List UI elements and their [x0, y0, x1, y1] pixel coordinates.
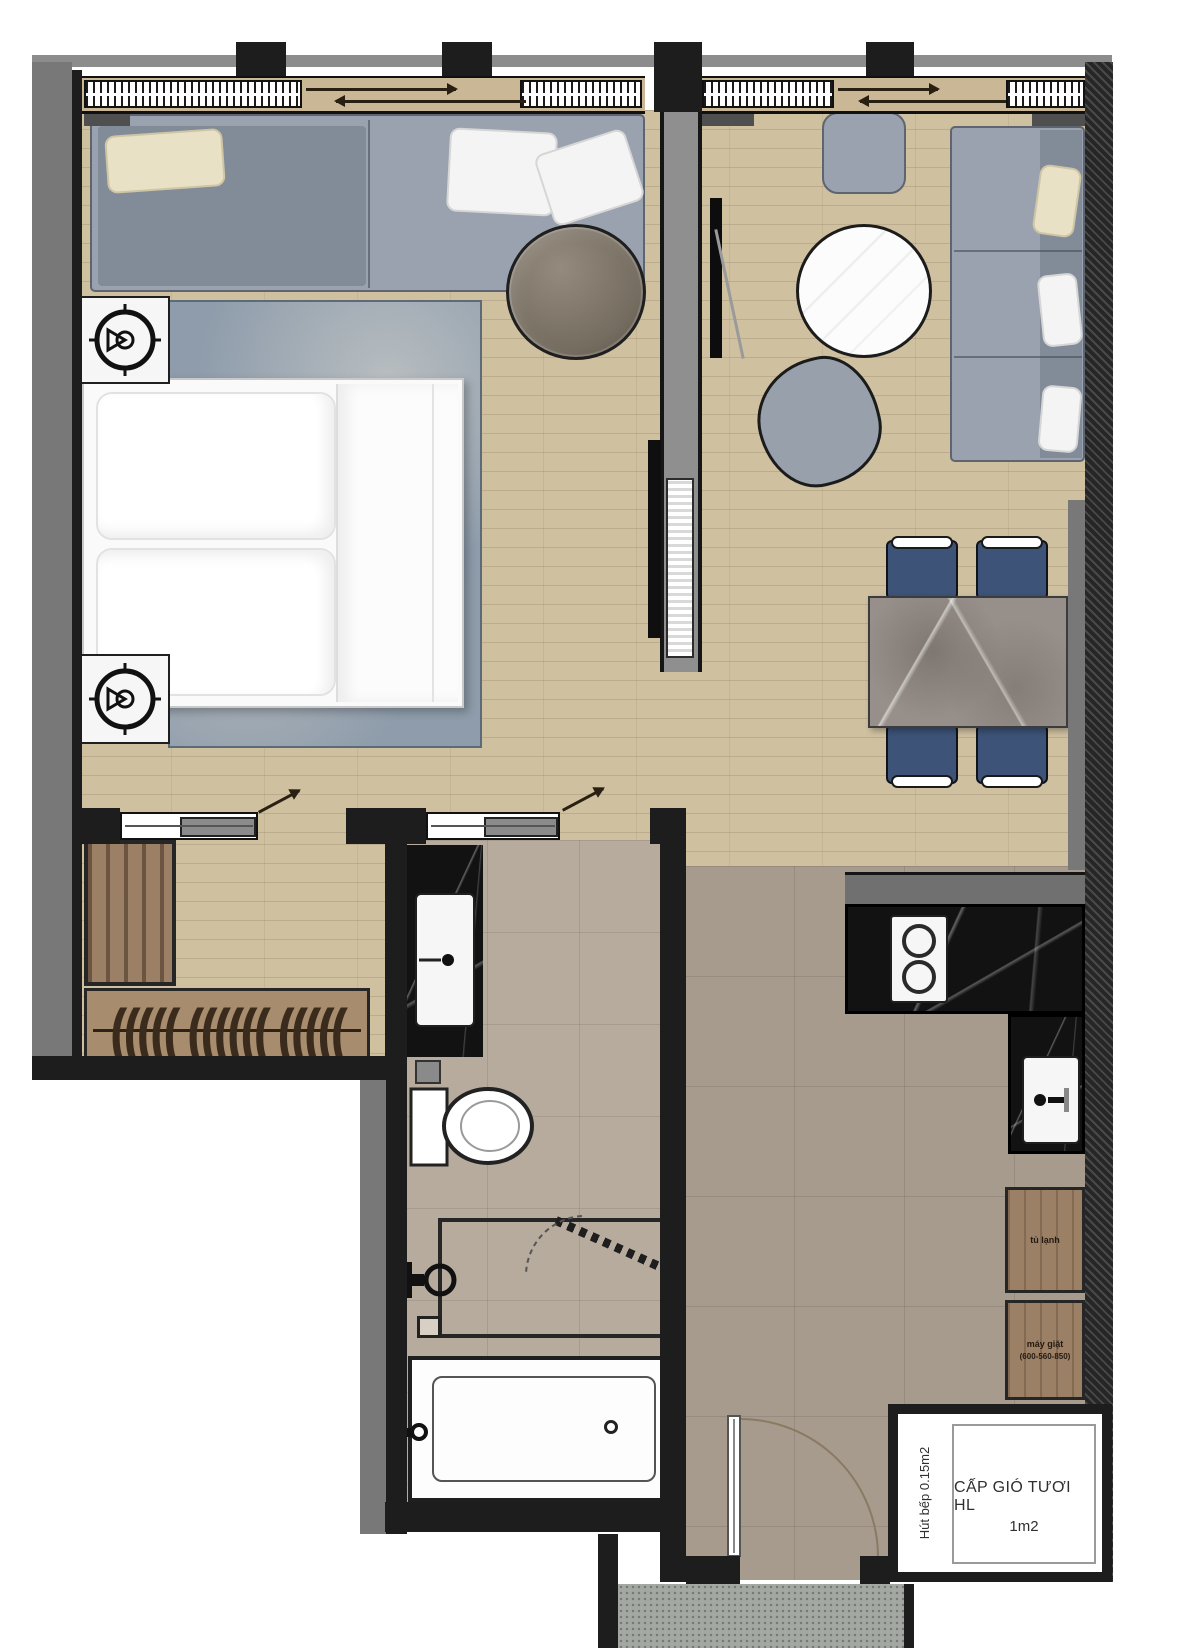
- chair-back-rail: [981, 775, 1043, 788]
- window-slide-arrow: [306, 88, 456, 91]
- window-slide-arrow: [838, 88, 938, 91]
- exterior-line-top: [32, 55, 1112, 67]
- kitchen-backsplash: [845, 872, 1085, 904]
- bedroom-partition-wall-left: [78, 808, 120, 844]
- window-hatch-bedroom-right: [520, 80, 642, 108]
- lamp-icon: [82, 298, 168, 382]
- dresser: [84, 840, 176, 986]
- bedroom-round-side-table: [506, 224, 646, 360]
- pocket-door-leaf-black: [648, 440, 661, 638]
- exterior-wall-left-inner: [72, 70, 82, 1074]
- burner-icons: [892, 917, 946, 1001]
- fridge-cabinet-label: tủ lạnh: [1030, 1235, 1060, 1246]
- bathtub: [408, 1356, 680, 1502]
- sliding-door-dressing[interactable]: [120, 812, 258, 840]
- chair-back-rail: [981, 536, 1043, 549]
- window-hatch-bedroom-left: [84, 80, 302, 108]
- bathroom-wall-right: [660, 808, 686, 1582]
- bathroom-wall-left: [385, 808, 407, 1534]
- dining-wall-face: [1068, 500, 1085, 870]
- sliding-door-bathroom[interactable]: [426, 812, 560, 840]
- window-slide-arrow: [860, 100, 1006, 103]
- bed-duvet: [336, 384, 458, 702]
- stove: [890, 915, 948, 1003]
- range-hood-label: Hút bếp 0.15m2: [917, 1447, 932, 1540]
- entry-wall-right-jamb: [860, 1556, 890, 1584]
- washer-cabinet-dims: (600-560-850): [1020, 1352, 1071, 1362]
- sofa-seat-line-1: [954, 250, 1082, 252]
- window-hatch-living-left: [702, 80, 834, 108]
- dining-chair-top-right: [976, 540, 1048, 600]
- bathroom-sink: [415, 893, 475, 1027]
- range-hood-label-wrap: Hút bếp 0.15m2: [916, 1418, 934, 1568]
- shower-drain: [417, 1316, 441, 1338]
- coffee-table-round: [796, 224, 932, 358]
- fresh-air-label: CẤP GIÓ TƯƠI HL: [954, 1479, 1094, 1515]
- window-hatch-living-right: [1006, 80, 1085, 108]
- tp-holder: [415, 1060, 441, 1084]
- exterior-wall-right: [1085, 62, 1113, 1582]
- entry-door-leaf[interactable]: [727, 1415, 741, 1557]
- sliding-door-leaf: [180, 817, 256, 837]
- corridor-wall-right: [904, 1584, 914, 1648]
- fresh-air-area: 1m2: [1009, 1518, 1038, 1535]
- shower-door-swing-arc: [520, 1212, 590, 1282]
- dining-chair-bottom-left: [886, 724, 958, 784]
- exterior-wall-bottom-left: [32, 1056, 388, 1080]
- corridor-wall-left: [598, 1534, 618, 1648]
- chair-back-rail: [891, 775, 953, 788]
- corridor-floor: [618, 1584, 906, 1648]
- ottoman: [822, 112, 906, 194]
- tv: [710, 198, 722, 358]
- entry-door-swing-arc: [690, 1405, 890, 1575]
- sofa-pillow-white-2: [1037, 384, 1083, 453]
- exterior-wall-left: [32, 62, 72, 1076]
- sofa-seat-line-2: [954, 356, 1082, 358]
- bathtub-drain: [604, 1420, 618, 1434]
- curtain-box-1: [84, 114, 130, 126]
- fridge-cabinet: tủ lạnh: [1005, 1187, 1085, 1293]
- bathroom-wall-bottom: [385, 1502, 686, 1532]
- dining-table: [868, 596, 1068, 728]
- kitchen-counter-top: [845, 904, 1085, 1014]
- bed-duvet-fold: [432, 384, 434, 702]
- shower-head-icon: [400, 1252, 466, 1308]
- door-leaf-line: [733, 1419, 735, 1553]
- floor-plan: tủ lạnh máy giặt (600-560-850): [0, 0, 1188, 1649]
- sink-faucet-icon: [417, 895, 473, 1025]
- exterior-wall-left-lower: [360, 1074, 386, 1534]
- faucet-icon: [1024, 1058, 1078, 1142]
- column-3: [654, 42, 702, 112]
- pocket-door: [666, 478, 694, 658]
- nightstand-bottom: [80, 654, 170, 744]
- sliding-door-leaf: [484, 817, 558, 837]
- bench-pillow-cream: [104, 128, 226, 194]
- nightstand-top: [80, 296, 170, 384]
- washer-cabinet: máy giặt (600-560-850): [1005, 1300, 1085, 1400]
- curtain-box-2: [702, 114, 754, 126]
- dining-chair-bottom-right: [976, 724, 1048, 784]
- toilet: [408, 1082, 540, 1172]
- washer-cabinet-label: máy giặt: [1027, 1339, 1064, 1350]
- sofa-pillow-white-1: [1036, 272, 1083, 348]
- chair-back-rail: [891, 536, 953, 549]
- bench-cushion-divider: [368, 120, 370, 288]
- bathtub-inner: [432, 1376, 656, 1482]
- kitchen-sink: [1022, 1056, 1080, 1144]
- dining-chair-top-left: [886, 540, 958, 600]
- curtain-box-3: [1032, 114, 1085, 126]
- lamp-icon: [82, 656, 168, 742]
- entry-wall-left-jamb: [686, 1556, 740, 1584]
- bed-pillow-1: [96, 392, 336, 540]
- window-slide-arrow: [336, 100, 526, 103]
- fresh-air-inner-rect: CẤP GIÓ TƯƠI HL 1m2: [952, 1424, 1096, 1564]
